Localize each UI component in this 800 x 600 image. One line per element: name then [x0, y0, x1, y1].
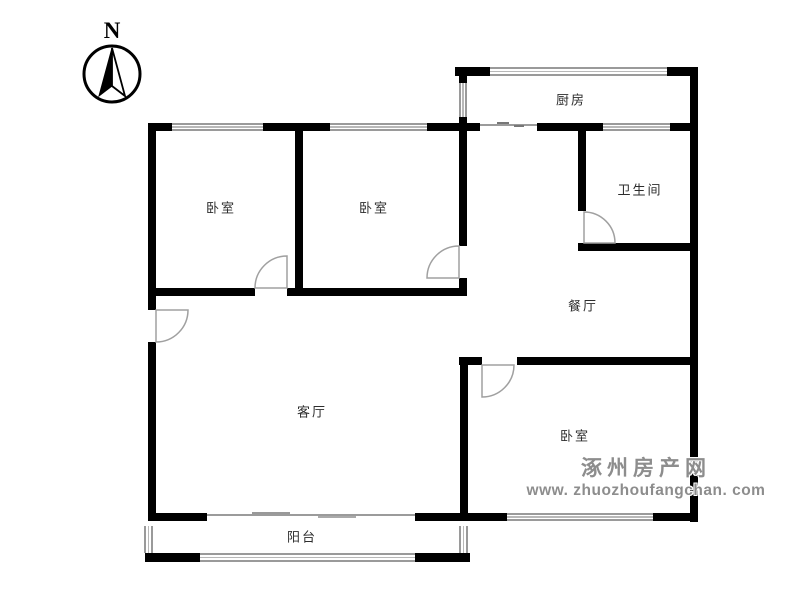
floor-plan: N 厨房 卫生间 卧室 卧室 餐厅 客厅 卧室 阳台 涿州房产网 www. zh…: [0, 0, 800, 600]
compass-needle-right: [112, 48, 125, 96]
door-arc-entry: [156, 310, 188, 342]
door-arc-bedroom-1: [255, 256, 287, 288]
room-label-living: 客厅: [297, 402, 327, 421]
room-label-bedroom-3: 卧室: [560, 426, 590, 445]
compass-needle-left: [99, 48, 112, 96]
watermark-url: www. zhuozhoufangchan. com: [520, 482, 772, 499]
room-label-bathroom: 卫生间: [617, 180, 662, 199]
doors-and-compass-layer: [0, 0, 800, 600]
room-label-bedroom-1: 卧室: [206, 198, 236, 217]
room-label-bedroom-2: 卧室: [359, 198, 389, 217]
door-arc-bedroom-2: [427, 246, 459, 278]
door-arc-bathroom: [584, 212, 615, 243]
watermark: 涿州房产网 www. zhuozhoufangchan. com: [520, 456, 772, 499]
room-label-dining: 餐厅: [568, 296, 598, 315]
compass-north-label: N: [104, 18, 121, 44]
watermark-site-name: 涿州房产网: [520, 456, 772, 482]
room-label-kitchen: 厨房: [556, 90, 586, 109]
room-label-balcony: 阳台: [287, 527, 317, 546]
door-arc-bedroom-3: [482, 365, 514, 397]
